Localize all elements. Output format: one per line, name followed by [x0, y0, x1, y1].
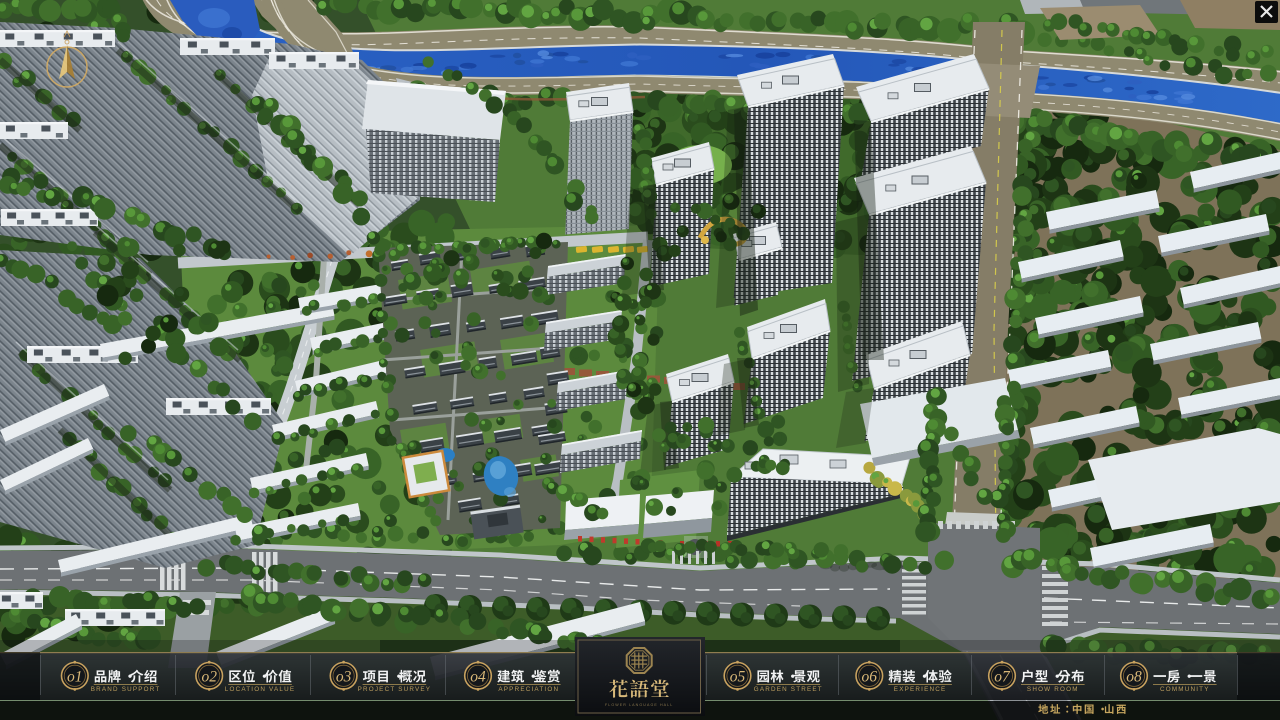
svg-text:o1: o1 [67, 668, 83, 685]
svg-text:o8: o8 [1126, 668, 1142, 685]
svg-text:o4: o4 [470, 668, 486, 685]
svg-text:PROJECT SURVEY: PROJECT SURVEY [358, 686, 432, 693]
svg-text:SHOW ROOM: SHOW ROOM [1027, 686, 1079, 693]
svg-text:COMMUNITY: COMMUNITY [1160, 686, 1210, 693]
svg-text:o5: o5 [730, 668, 746, 685]
svg-text:FLOWER LANGUAGE HALL: FLOWER LANGUAGE HALL [605, 703, 673, 707]
svg-text:GARDEN STREET: GARDEN STREET [754, 686, 823, 693]
svg-text:APPRECIATION: APPRECIATION [498, 686, 559, 693]
svg-text:LOCATION VALUE: LOCATION VALUE [225, 686, 295, 693]
svg-text:BRAND SUPPORT: BRAND SUPPORT [91, 686, 161, 693]
svg-text:EXPERIENCE: EXPERIENCE [894, 686, 947, 693]
svg-text:o3: o3 [336, 668, 352, 685]
svg-text:o6: o6 [862, 668, 878, 685]
svg-text:o2: o2 [201, 668, 217, 685]
svg-text:o7: o7 [994, 668, 1011, 685]
